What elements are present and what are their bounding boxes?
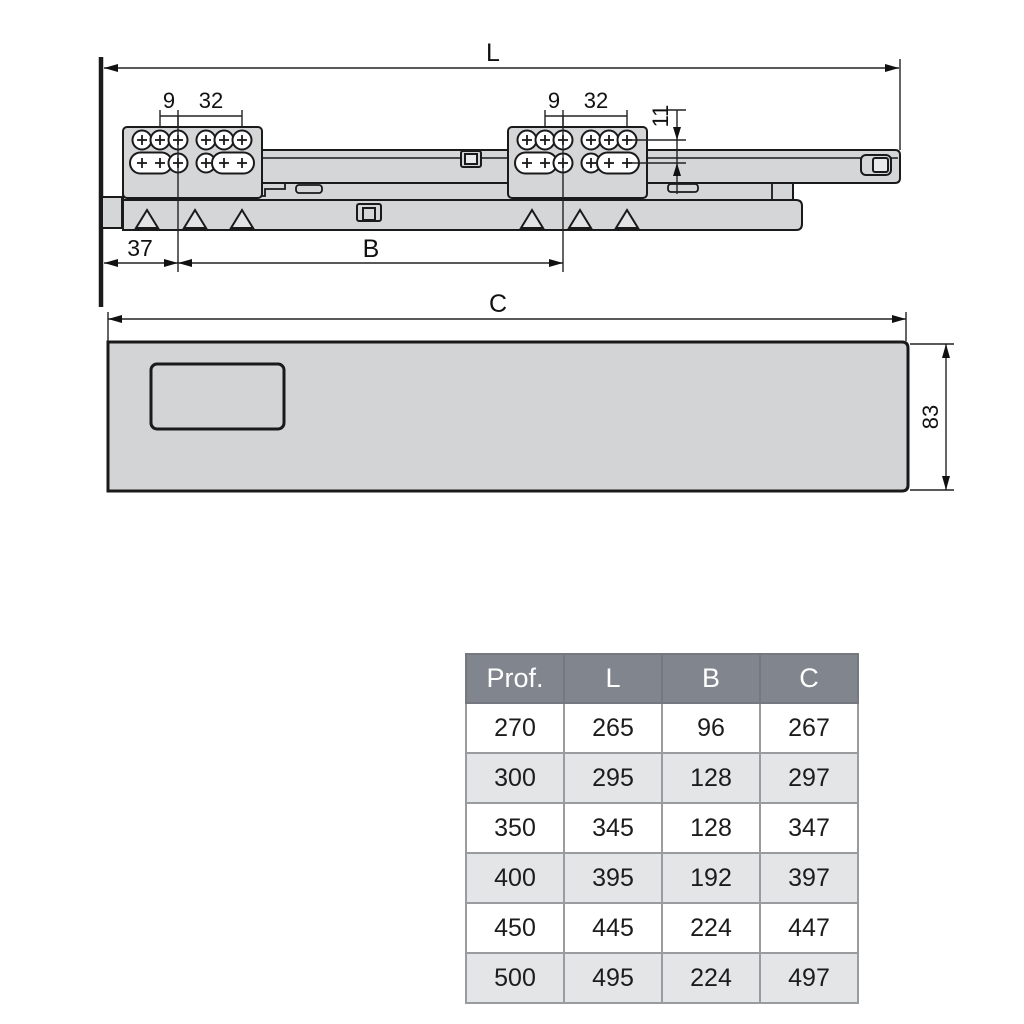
drawer-panel-view [108, 342, 908, 491]
dim-label-32-right: 32 [584, 88, 608, 113]
dimension-value-cell: 297 [760, 753, 858, 803]
dimension-value-cell: 265 [564, 703, 662, 753]
dim-label-9-left: 9 [163, 88, 175, 113]
table-row: 350345128347 [466, 803, 858, 853]
dimension-value-cell: 128 [662, 753, 760, 803]
dimension-value-cell: 350 [466, 803, 564, 853]
dim-label-L: L [486, 39, 500, 67]
dim-label-32-left: 32 [199, 88, 223, 113]
column-header-b: B [662, 654, 760, 703]
dimension-value-cell: 345 [564, 803, 662, 853]
dimension-value-cell: 300 [466, 753, 564, 803]
dimension-value-cell: 500 [466, 953, 564, 1003]
dim-label-37: 37 [127, 235, 153, 261]
table-row: 450445224447 [466, 903, 858, 953]
table-row: 400395192397 [466, 853, 858, 903]
dimension-value-cell: 395 [564, 853, 662, 903]
dimension-value-cell: 267 [760, 703, 858, 753]
dimension-spec-table: Prof.LBC 2702659626730029512829735034512… [465, 653, 859, 1004]
dimension-value-cell: 224 [662, 903, 760, 953]
dimension-value-cell: 397 [760, 853, 858, 903]
column-header-prof: Prof. [466, 654, 564, 703]
table-header-row: Prof.LBC [466, 654, 858, 703]
dimension-value-cell: 445 [564, 903, 662, 953]
panel-cutout [151, 364, 284, 429]
table-body: 2702659626730029512829735034512834740039… [466, 703, 858, 1003]
dimension-value-cell: 192 [662, 853, 760, 903]
dim-label-C: C [489, 290, 507, 318]
dimension-value-cell: 447 [760, 903, 858, 953]
table-row: 27026596267 [466, 703, 858, 753]
dimension-value-cell: 96 [662, 703, 760, 753]
spec-table-container: Prof.LBC 2702659626730029512829735034512… [465, 653, 859, 1004]
dim-label-B: B [363, 235, 380, 263]
dimension-value-cell: 270 [466, 703, 564, 753]
dimension-value-cell: 224 [662, 953, 760, 1003]
dimension-value-cell: 295 [564, 753, 662, 803]
table-row: 300295128297 [466, 753, 858, 803]
dimension-value-cell: 497 [760, 953, 858, 1003]
column-header-l: L [564, 654, 662, 703]
dim-label-83: 83 [918, 405, 943, 429]
dimension-value-cell: 495 [564, 953, 662, 1003]
dimension-value-cell: 400 [466, 853, 564, 903]
dimension-value-cell: 450 [466, 903, 564, 953]
technical-drawing: L 9 32 9 32 11 37 B C 83 [0, 0, 1024, 560]
column-header-c: C [760, 654, 858, 703]
dim-label-9-right: 9 [548, 88, 560, 113]
dimension-value-cell: 347 [760, 803, 858, 853]
dimension-value-cell: 128 [662, 803, 760, 853]
dim-label-11: 11 [648, 105, 673, 128]
table-row: 500495224497 [466, 953, 858, 1003]
